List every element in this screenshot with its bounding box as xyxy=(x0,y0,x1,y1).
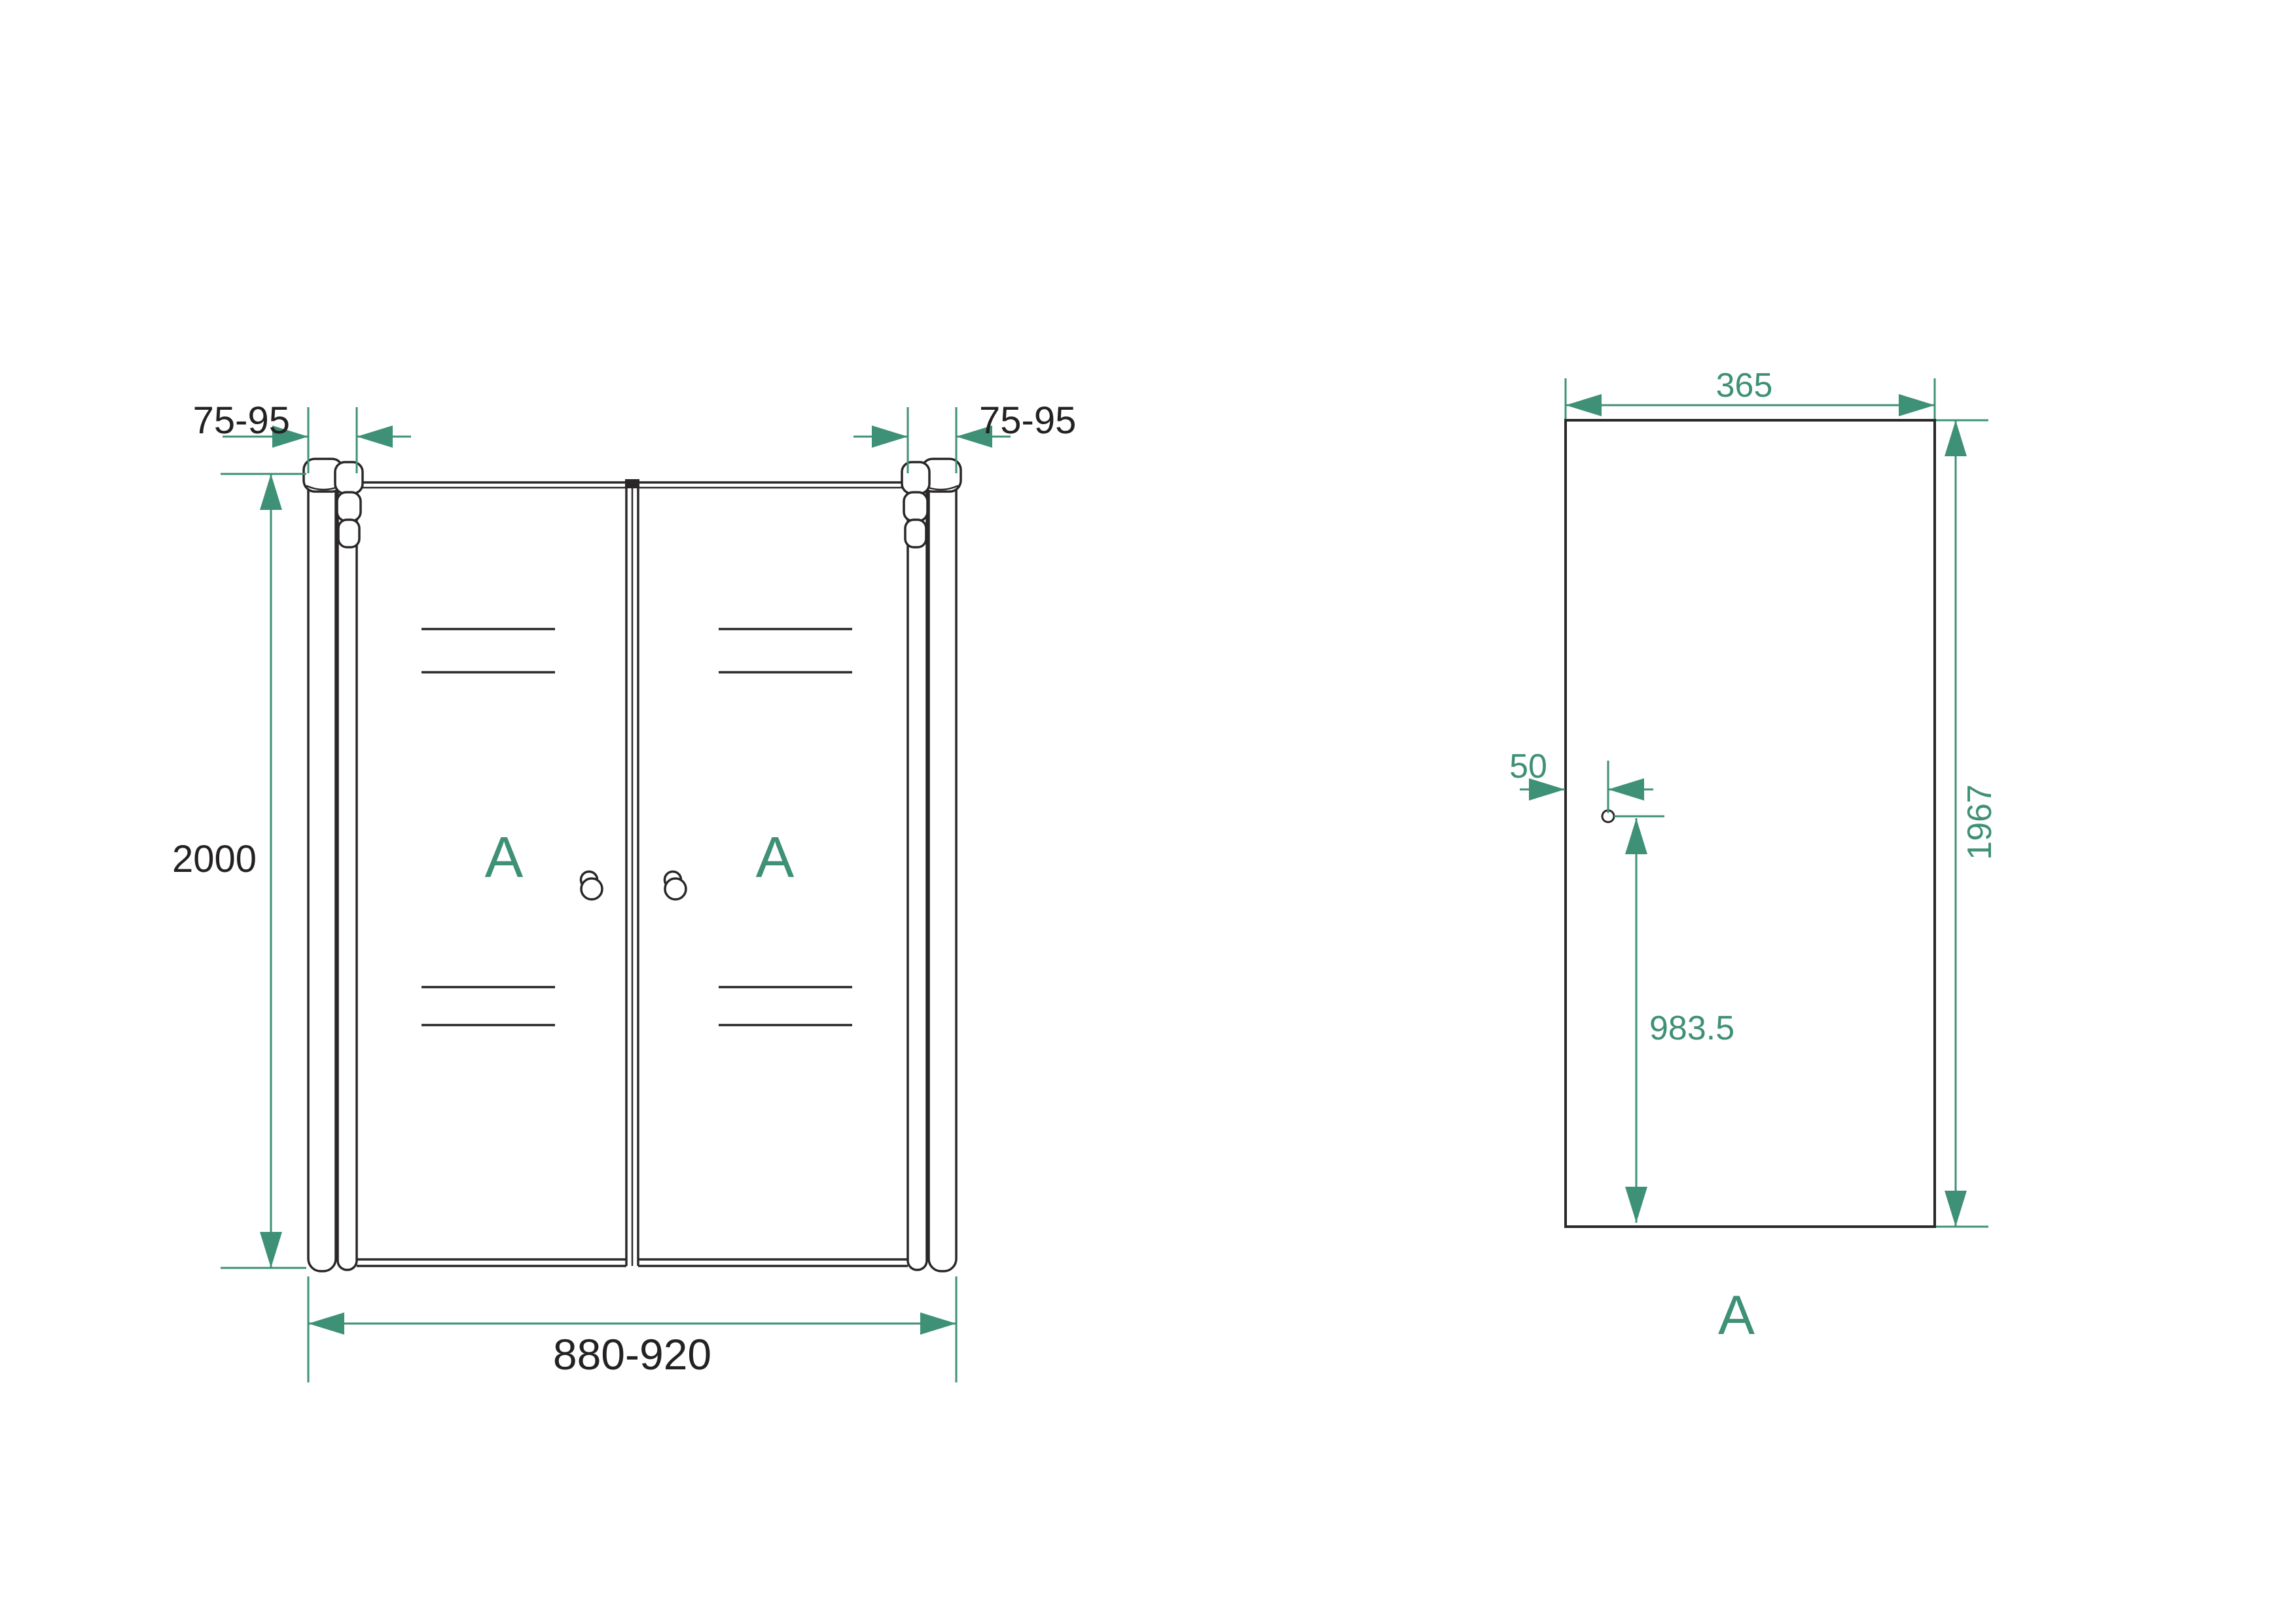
dim-text: 75-95 xyxy=(979,399,1076,442)
door-right-label: A xyxy=(756,825,795,890)
technical-drawing: A A 75-95 75-95 2000 xyxy=(0,0,2296,1624)
dim-text: 1967 xyxy=(1961,784,1999,860)
handle-left-knob xyxy=(581,878,602,899)
door-center-top-block xyxy=(625,479,639,488)
handle-right-knob xyxy=(665,878,686,899)
wall-profile-right-body xyxy=(929,462,956,1271)
panel-view: 365 1967 50 983.5 A xyxy=(1509,367,1999,1346)
dim-text: 880-920 xyxy=(553,1330,711,1379)
hinge-right-knuckle xyxy=(905,520,926,547)
wall-profile-right xyxy=(902,459,961,1271)
dim-text: 2000 xyxy=(172,838,257,880)
dim-text: 983.5 xyxy=(1649,1009,1734,1047)
door-left-hinge-stile xyxy=(338,484,357,1270)
glass-panel-outline xyxy=(1566,420,1935,1227)
hinge-left-knuckle xyxy=(337,492,361,521)
hinge-left-knuckle xyxy=(338,520,359,547)
hinge-right-cap xyxy=(902,462,929,494)
wall-profile-left-body xyxy=(308,462,336,1271)
drawing-svg: A A 75-95 75-95 2000 xyxy=(0,0,2296,1624)
dim-text: 365 xyxy=(1716,367,1773,405)
dim-text: 75-95 xyxy=(193,399,290,442)
door-left-label: A xyxy=(485,825,524,890)
dim-text: 50 xyxy=(1509,748,1547,785)
hinge-right-knuckle xyxy=(904,492,927,521)
door-right-hinge-stile xyxy=(908,484,927,1270)
hinge-left-cap xyxy=(335,462,363,494)
panel-label: A xyxy=(1718,1284,1755,1346)
wall-profile-left xyxy=(304,459,363,1271)
